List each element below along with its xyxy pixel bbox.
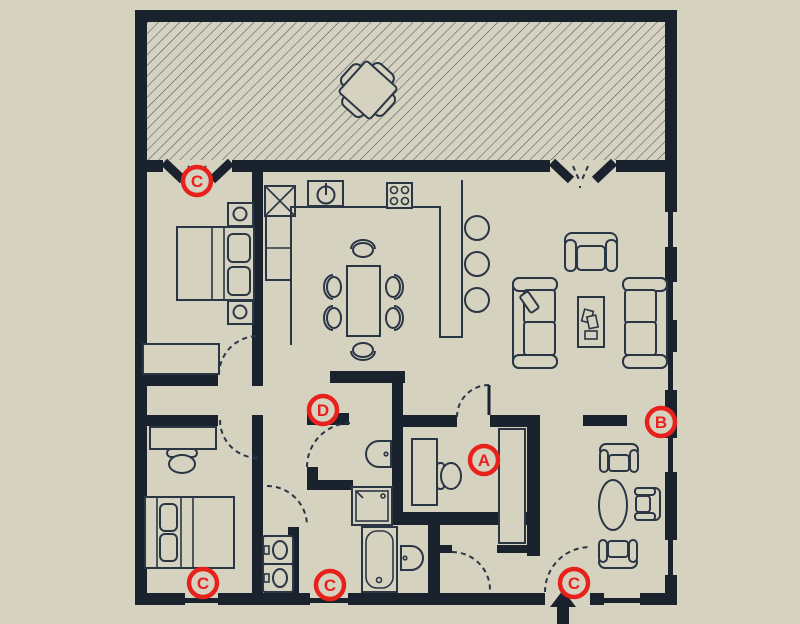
stove [387,183,412,208]
dining-chair [324,275,341,299]
marker-b-3[interactable]: B [647,408,675,436]
sofa [513,278,557,368]
patio [147,22,665,160]
dresser [143,344,219,374]
desk [412,439,437,505]
marker-letter: C [324,576,336,595]
marker-c-6[interactable]: C [560,569,588,597]
marker-letter: A [478,451,490,470]
laundry [263,536,293,592]
desk-chair [437,463,461,489]
pillow [228,267,250,295]
marker-c-0[interactable]: C [183,167,211,195]
marker-c-5[interactable]: C [316,571,344,599]
marker-a-2[interactable]: A [470,446,498,474]
marker-letter: D [317,401,329,420]
marker-letter: C [568,574,580,593]
floor-plan: CDABCCC [0,0,800,624]
remote [585,331,597,339]
bar-stool [465,252,489,276]
paper [587,315,598,329]
pillow [160,504,177,531]
side-chair [635,488,660,520]
closet [499,429,525,543]
sink [308,181,343,206]
shower [352,487,392,525]
dining-table [347,266,380,336]
coffee-table [578,297,604,347]
washer [263,536,293,564]
nightstand [228,301,253,324]
pillow [160,534,177,561]
dryer [263,564,293,592]
toilet [401,546,423,570]
marker-letter: C [197,574,209,593]
bed [145,497,234,568]
desk [150,427,216,449]
wall-sink [366,441,391,467]
bar-stool [465,216,489,240]
pillow [228,234,250,262]
nightstand [228,203,253,226]
oval-table [599,480,627,530]
marker-letter: B [655,413,667,432]
bathtub [362,527,397,592]
dining-chair [351,240,375,257]
marker-c-4[interactable]: C [189,569,217,597]
armchair [600,444,638,472]
sofa [623,278,667,368]
bed [177,227,254,300]
marker-d-1[interactable]: D [309,396,337,424]
dining-chair [351,343,375,360]
armchair [599,540,637,568]
dining-chair [386,306,403,330]
desk-chair [167,449,197,473]
armchair [565,233,617,271]
dining-chair [324,306,341,330]
dining-chair [386,275,403,299]
marker-letter: C [191,172,203,191]
bar-stool [465,288,489,312]
